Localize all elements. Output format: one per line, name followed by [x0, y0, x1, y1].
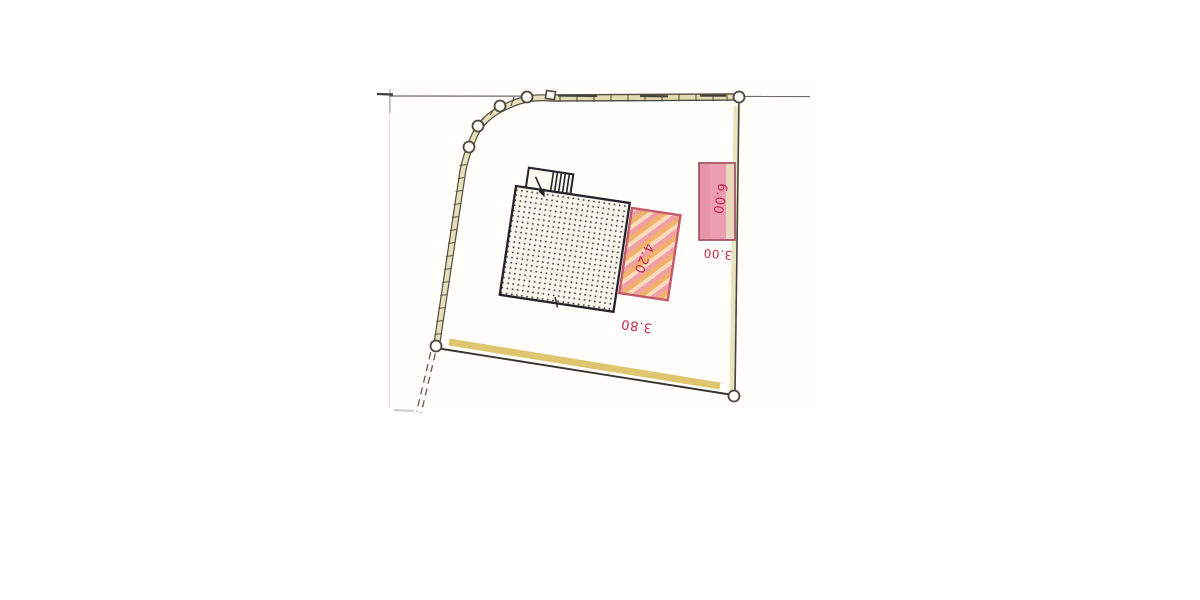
survey-line-end-dash [377, 94, 393, 95]
scan-edge-bottom-mark [394, 410, 414, 411]
dimension-label-outbuilding-width: 3.00 [703, 246, 733, 262]
site-plan-scan: 4.20 3.80 6.00 3.00 [0, 0, 1200, 600]
survey-point-bottom-right [729, 391, 740, 402]
survey-point-curve-2 [495, 101, 506, 112]
survey-point-bottom-left [431, 341, 442, 352]
survey-point-curve-1 [522, 92, 533, 103]
outbuilding-shade [700, 164, 710, 239]
site-plan-drawing: 4.20 3.80 6.00 3.00 [0, 0, 1200, 600]
survey-point-top-right [734, 92, 745, 103]
survey-marker-square [545, 90, 555, 99]
boundary-top-band-dashes [558, 96, 726, 97]
survey-point-curve-3 [473, 121, 484, 132]
main-building [500, 186, 630, 312]
survey-point-curve-4 [464, 142, 475, 153]
